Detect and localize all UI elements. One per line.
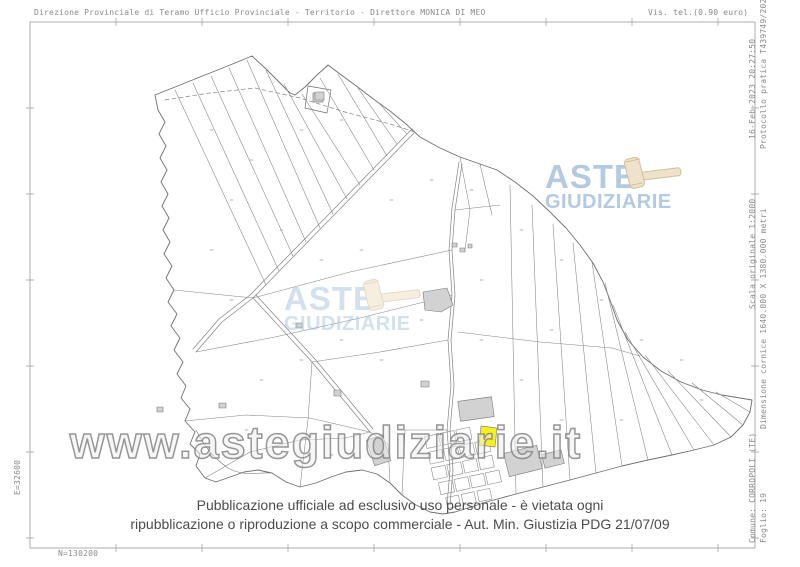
margin-east-coord: E=32600 (13, 460, 22, 495)
river-line (196, 430, 272, 474)
highlighted-parcel (479, 426, 497, 447)
header-right: Vis. tel.(0.90 euro) (648, 8, 748, 17)
margin-scala: Scala originale 1:2000 (748, 199, 757, 309)
road-southeast (253, 295, 373, 432)
road-main-diagonal (193, 129, 415, 352)
disclaimer-line1: Pubblicazione ufficiale ad esclusivo uso… (0, 497, 800, 513)
map-frame (26, 18, 759, 552)
disclaimer-line2: ripubblicazione o riproduzione a scopo c… (0, 516, 800, 532)
cadastral-map (0, 0, 800, 567)
margin-date: 16-Feb-2023 20:27:50 (748, 39, 757, 139)
east-strip-parcels (458, 185, 750, 494)
margin-dimensione: Dimensione cornice 1640.000 X 1380.000 m… (759, 208, 768, 429)
road-vertical (447, 162, 462, 505)
margin-north-coord: N=130200 (58, 549, 98, 558)
parcel-number-marks (210, 120, 703, 455)
buildings (157, 92, 564, 477)
margin-protocollo: Protocollo pratica T439749/2023 (759, 0, 768, 149)
map-outer-boundary (155, 56, 752, 514)
header-left: Direzione Provinciale di Teramo Ufficio … (34, 8, 485, 17)
